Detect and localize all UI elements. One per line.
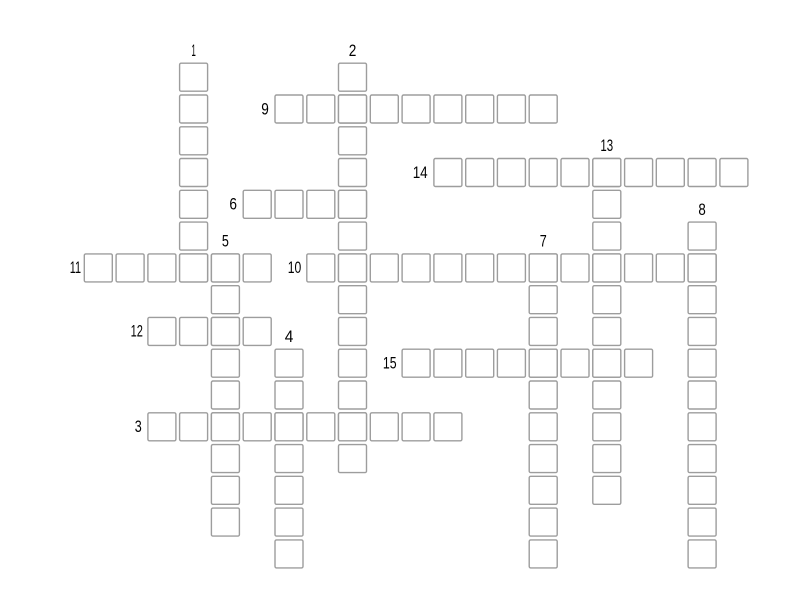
svg-text:12: 12 (131, 323, 143, 341)
svg-text:11: 11 (70, 259, 81, 277)
svg-text:4: 4 (285, 328, 294, 346)
svg-text:8: 8 (698, 201, 705, 219)
svg-text:2: 2 (349, 42, 357, 60)
svg-text:10: 10 (288, 259, 302, 277)
svg-text:1: 1 (191, 42, 196, 60)
svg-text:7: 7 (540, 233, 547, 251)
svg-text:9: 9 (261, 100, 269, 118)
svg-text:6: 6 (229, 196, 237, 214)
svg-text:15: 15 (383, 355, 397, 373)
svg-text:5: 5 (222, 233, 229, 251)
svg-text:3: 3 (135, 418, 142, 436)
svg-text:13: 13 (600, 137, 613, 155)
svg-text:14: 14 (413, 164, 428, 182)
